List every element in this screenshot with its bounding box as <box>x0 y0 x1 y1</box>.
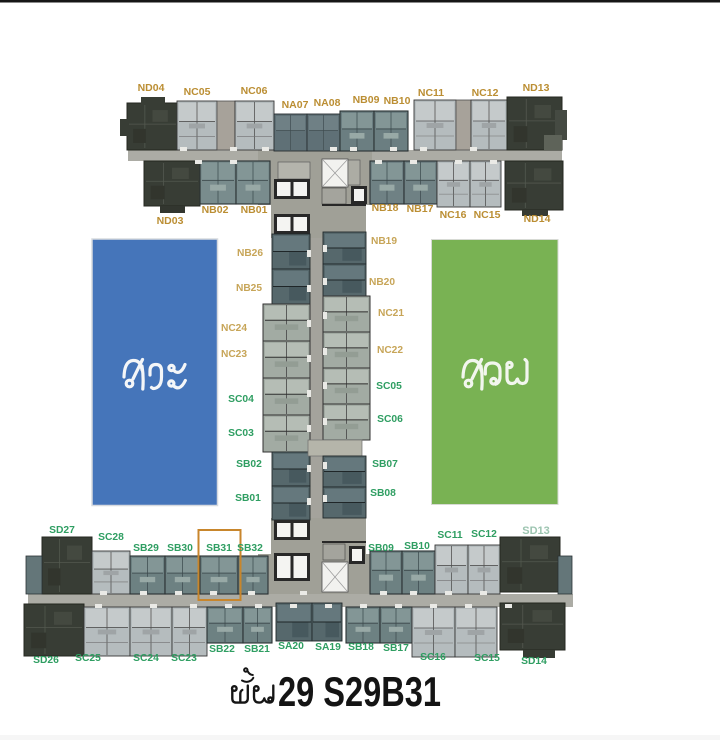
svg-text:29 S29B31: 29 S29B31 <box>278 668 441 715</box>
svg-text:SC06: SC06 <box>377 414 403 425</box>
svg-text:SC04: SC04 <box>228 394 254 405</box>
svg-text:SC11: SC11 <box>437 530 462 541</box>
svg-text:SC05: SC05 <box>376 381 402 392</box>
svg-text:NA07: NA07 <box>282 99 309 111</box>
svg-text:SA20: SA20 <box>278 641 304 652</box>
svg-text:NB26: NB26 <box>237 248 263 259</box>
svg-text:NB20: NB20 <box>369 277 395 288</box>
svg-text:NB25: NB25 <box>236 283 262 294</box>
svg-text:SB07: SB07 <box>372 459 398 470</box>
svg-text:SB21: SB21 <box>244 644 270 655</box>
svg-text:NA08: NA08 <box>314 97 341 109</box>
svg-text:ND14: ND14 <box>524 213 551 225</box>
svg-text:NC16: NC16 <box>440 209 467 221</box>
svg-text:NC23: NC23 <box>221 349 247 360</box>
svg-text:NB10: NB10 <box>384 95 411 107</box>
svg-text:SB09: SB09 <box>368 543 394 554</box>
svg-text:NC21: NC21 <box>378 308 404 319</box>
svg-text:SA19: SA19 <box>315 642 341 653</box>
svg-text:SB32: SB32 <box>237 543 263 554</box>
svg-text:SB02: SB02 <box>236 459 262 470</box>
svg-text:SC23: SC23 <box>171 653 197 664</box>
svg-text:SC25: SC25 <box>75 653 101 664</box>
svg-text:SD27: SD27 <box>49 525 75 536</box>
svg-text:SD14: SD14 <box>521 656 547 667</box>
svg-text:SC12: SC12 <box>471 529 497 540</box>
svg-text:NB17: NB17 <box>407 203 434 215</box>
svg-text:SD26: SD26 <box>33 655 59 666</box>
svg-text:NB18: NB18 <box>372 202 399 214</box>
svg-text:ND03: ND03 <box>157 215 184 227</box>
svg-text:SC15: SC15 <box>474 653 500 664</box>
svg-text:NB19: NB19 <box>371 236 397 247</box>
svg-text:SD13: SD13 <box>522 525 550 537</box>
svg-text:NC15: NC15 <box>474 209 501 221</box>
svg-text:SB18: SB18 <box>348 642 374 653</box>
svg-text:NC06: NC06 <box>241 85 268 97</box>
svg-text:NB02: NB02 <box>202 204 229 216</box>
svg-text:SC16: SC16 <box>420 652 446 663</box>
svg-text:NB09: NB09 <box>353 94 380 106</box>
svg-text:SC24: SC24 <box>133 653 159 664</box>
svg-text:NB01: NB01 <box>241 204 268 216</box>
svg-text:SB31: SB31 <box>206 543 232 554</box>
svg-text:SB29: SB29 <box>133 543 159 554</box>
svg-text:SB22: SB22 <box>209 644 235 655</box>
svg-text:NC24: NC24 <box>221 323 247 334</box>
svg-text:SB08: SB08 <box>370 488 396 499</box>
svg-text:ND04: ND04 <box>138 82 165 94</box>
svg-text:SC28: SC28 <box>98 532 124 543</box>
svg-text:NC11: NC11 <box>418 87 444 99</box>
svg-text:SB01: SB01 <box>235 493 261 504</box>
svg-text:NC22: NC22 <box>377 345 403 356</box>
svg-text:NC12: NC12 <box>472 87 499 99</box>
svg-text:ND13: ND13 <box>523 82 550 94</box>
svg-text:NC05: NC05 <box>184 86 211 98</box>
svg-text:SB30: SB30 <box>167 543 193 554</box>
svg-text:SC03: SC03 <box>228 428 254 439</box>
svg-text:SB17: SB17 <box>383 643 409 654</box>
svg-text:SB10: SB10 <box>404 541 430 552</box>
